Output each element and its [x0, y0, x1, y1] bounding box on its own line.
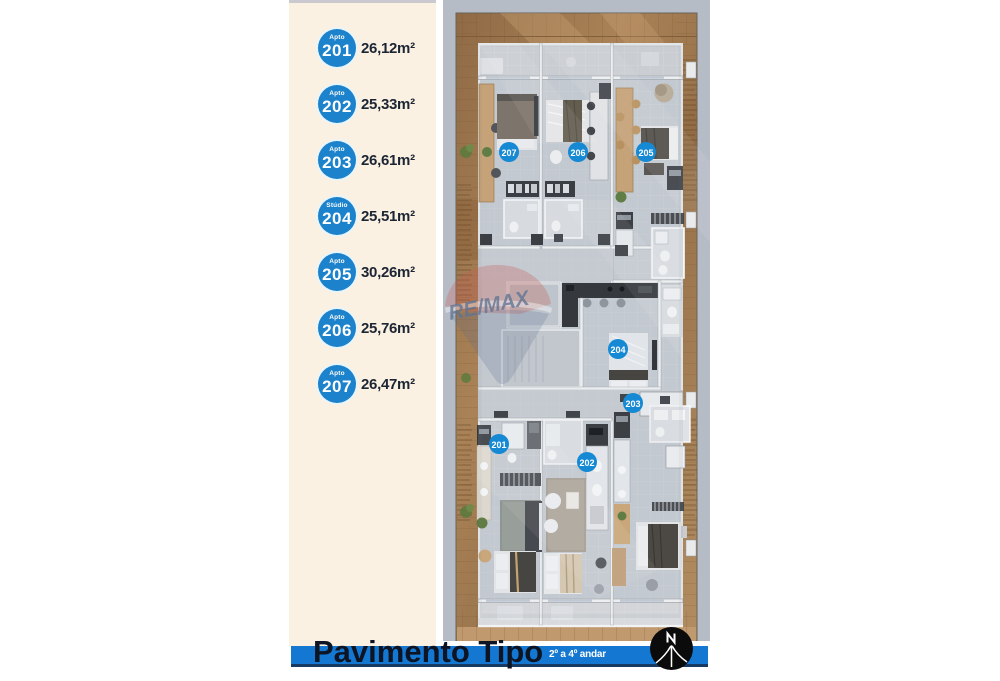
svg-text:201: 201: [491, 440, 506, 450]
svg-text:206: 206: [570, 148, 585, 158]
svg-text:202: 202: [579, 458, 594, 468]
svg-text:204: 204: [610, 345, 625, 355]
svg-text:207: 207: [501, 148, 516, 158]
svg-text:203: 203: [625, 399, 640, 409]
svg-text:205: 205: [638, 148, 653, 158]
